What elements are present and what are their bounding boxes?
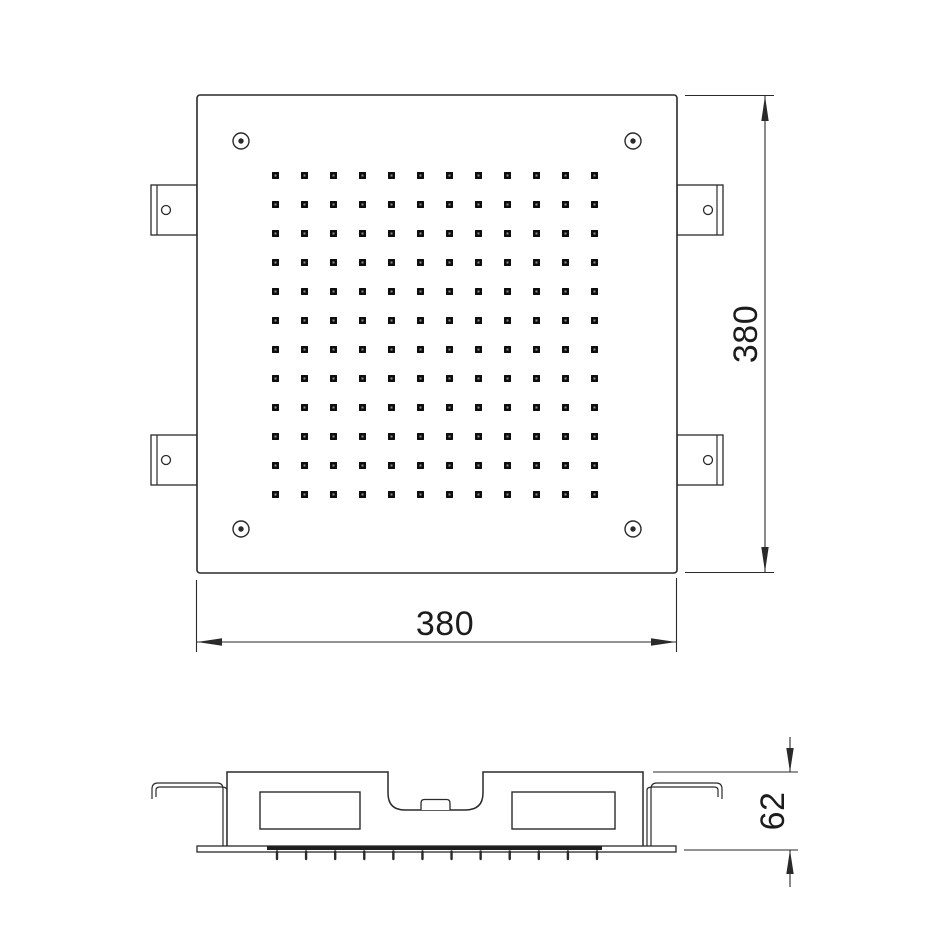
nozzle-opening — [391, 320, 393, 322]
nozzle-opening — [362, 349, 364, 351]
nozzle-opening — [507, 262, 509, 264]
nozzle-opening — [507, 349, 509, 351]
nozzle-opening — [536, 407, 538, 409]
nozzle-opening — [275, 204, 277, 206]
side-view — [152, 772, 722, 859]
clip-inner-line — [647, 787, 718, 847]
nozzle-opening — [565, 262, 567, 264]
nozzle-opening — [391, 291, 393, 293]
nozzle-opening — [362, 262, 364, 264]
nozzle-opening — [275, 436, 277, 438]
nozzle-opening — [536, 494, 538, 496]
center-inlet-tab — [421, 800, 450, 811]
nozzle-opening — [478, 436, 480, 438]
dimension-label-depth: 62 — [754, 792, 792, 831]
nozzle-opening — [507, 320, 509, 322]
nozzle-opening — [536, 204, 538, 206]
nozzle-opening — [594, 204, 596, 206]
nozzle-opening — [362, 233, 364, 235]
nozzle-opening — [594, 320, 596, 322]
shower-plate-outline — [197, 95, 677, 573]
arrowhead-up — [761, 96, 768, 121]
nozzle-opening — [449, 204, 451, 206]
nozzle-opening — [304, 262, 306, 264]
nozzle-opening — [391, 407, 393, 409]
nozzle-opening — [594, 291, 596, 293]
screw-hole-inner — [238, 526, 243, 531]
nozzle-opening — [304, 320, 306, 322]
nozzle-opening — [362, 465, 364, 467]
nozzle-opening — [304, 494, 306, 496]
spring-clip-left — [152, 783, 227, 847]
nozzle-opening — [507, 494, 509, 496]
nozzle-opening — [275, 262, 277, 264]
nozzle-opening — [449, 378, 451, 380]
screw-hole-inner — [238, 138, 243, 143]
nozzle-opening — [362, 407, 364, 409]
bracket-body — [151, 435, 197, 485]
arrowhead-right — [651, 638, 676, 645]
nozzle-opening — [275, 465, 277, 467]
nozzle-opening — [420, 349, 422, 351]
nozzle-opening — [275, 349, 277, 351]
nozzle-opening — [507, 233, 509, 235]
nozzle-opening — [333, 233, 335, 235]
nozzle-opening — [362, 494, 364, 496]
nozzle-opening — [594, 175, 596, 177]
nozzle-opening — [449, 175, 451, 177]
nozzle-opening — [536, 436, 538, 438]
dimension-plate-width: 380 — [197, 578, 677, 652]
nozzle-opening — [420, 378, 422, 380]
nozzle-opening — [304, 407, 306, 409]
nozzle-opening — [449, 407, 451, 409]
nozzle-opening — [449, 494, 451, 496]
dimension-plate-height: 380 — [685, 96, 774, 573]
nozzle-opening — [478, 175, 480, 177]
dimension-label-width: 380 — [416, 605, 474, 643]
nozzle-opening — [565, 378, 567, 380]
screw-hole-inner — [630, 138, 635, 143]
nozzle-opening — [391, 175, 393, 177]
nozzle-opening — [478, 349, 480, 351]
nozzle-opening — [536, 175, 538, 177]
nozzle-opening — [333, 262, 335, 264]
nozzle-opening — [304, 233, 306, 235]
nozzle-opening — [594, 262, 596, 264]
nozzle-opening — [275, 494, 277, 496]
nozzle-opening — [391, 465, 393, 467]
nozzle-opening — [507, 175, 509, 177]
nozzle-opening — [304, 436, 306, 438]
clip-inner-line — [156, 787, 227, 847]
nozzle-opening — [536, 378, 538, 380]
nozzle-opening — [449, 291, 451, 293]
nozzle-opening — [362, 204, 364, 206]
nozzle-opening — [507, 378, 509, 380]
arrowhead-up — [786, 850, 793, 874]
nozzle-opening — [594, 349, 596, 351]
nozzle-opening — [420, 175, 422, 177]
nozzle-opening — [391, 204, 393, 206]
nozzle-opening — [275, 407, 277, 409]
nozzle-opening — [275, 320, 277, 322]
nozzle-opening — [333, 291, 335, 293]
nozzle-opening — [275, 175, 277, 177]
nozzle-opening — [594, 407, 596, 409]
nozzle-opening — [391, 378, 393, 380]
nozzle-opening — [304, 291, 306, 293]
nozzle-opening — [594, 436, 596, 438]
arrowhead-left — [197, 638, 222, 645]
nozzle-opening — [333, 204, 335, 206]
nozzle-opening — [478, 407, 480, 409]
nozzle-opening — [304, 175, 306, 177]
nozzle-opening — [333, 378, 335, 380]
technical-drawing-page: 380 380 — [0, 0, 950, 950]
nozzle-opening — [507, 436, 509, 438]
nozzle-opening — [362, 378, 364, 380]
arrowhead-down — [786, 748, 793, 772]
dimension-body-height: 62 — [653, 737, 798, 887]
mounting-bracket-left — [151, 435, 197, 485]
nozzle-opening — [565, 494, 567, 496]
nozzle-opening — [594, 465, 596, 467]
nozzle-opening — [565, 349, 567, 351]
clip-outer-line — [651, 783, 722, 847]
mounting-bracket-right — [677, 435, 723, 485]
mounting-bracket-right — [677, 185, 723, 235]
nozzle-opening — [507, 204, 509, 206]
arrowhead-down — [761, 547, 768, 572]
nozzle-opening — [420, 291, 422, 293]
nozzle-opening — [478, 233, 480, 235]
nozzle-opening — [304, 465, 306, 467]
bracket-body — [151, 185, 197, 235]
nozzle-opening — [565, 407, 567, 409]
nozzle-opening — [565, 465, 567, 467]
nozzle-opening — [478, 465, 480, 467]
nozzle-opening — [391, 494, 393, 496]
nozzle-opening — [507, 407, 509, 409]
bracket-body — [677, 185, 723, 235]
nozzle-opening — [565, 233, 567, 235]
top-view — [151, 95, 723, 573]
mounting-bracket-left — [151, 185, 197, 235]
nozzle-opening — [536, 465, 538, 467]
nozzle-opening — [420, 436, 422, 438]
nozzle-opening — [391, 436, 393, 438]
nozzle-opening — [275, 291, 277, 293]
nozzle-opening — [420, 204, 422, 206]
nozzle-opening — [449, 320, 451, 322]
nozzle-opening — [565, 175, 567, 177]
nozzle-opening — [565, 291, 567, 293]
nozzle-opening — [275, 233, 277, 235]
bracket-body — [677, 435, 723, 485]
nozzle-opening — [420, 320, 422, 322]
screw-hole-inner — [630, 526, 635, 531]
nozzle-opening — [507, 291, 509, 293]
nozzle-opening — [333, 320, 335, 322]
nozzle-opening — [333, 175, 335, 177]
nozzle-opening — [333, 349, 335, 351]
nozzle-opening — [449, 465, 451, 467]
nozzle-opening — [449, 233, 451, 235]
spring-clip-right — [647, 783, 722, 847]
nozzle-opening — [565, 436, 567, 438]
nozzle-opening — [420, 407, 422, 409]
nozzle-opening — [507, 465, 509, 467]
nozzle-opening — [304, 378, 306, 380]
nozzle-opening — [420, 494, 422, 496]
nozzle-opening — [594, 494, 596, 496]
nozzle-opening — [420, 262, 422, 264]
nozzle-opening — [449, 262, 451, 264]
nozzle-opening — [536, 291, 538, 293]
nozzle-opening — [391, 349, 393, 351]
nozzle-opening — [333, 436, 335, 438]
nozzle-opening — [304, 349, 306, 351]
nozzle-opening — [478, 320, 480, 322]
nozzle-opening — [333, 407, 335, 409]
shower-head-technical-drawing: 380 380 — [0, 0, 950, 950]
nozzle-opening — [304, 204, 306, 206]
nozzle-opening — [391, 233, 393, 235]
nozzle-opening — [565, 204, 567, 206]
nozzle-opening — [391, 262, 393, 264]
nozzle-opening — [362, 320, 364, 322]
nozzle-opening — [362, 291, 364, 293]
nozzle-opening — [333, 494, 335, 496]
nozzle-opening — [536, 262, 538, 264]
nozzle-opening — [565, 320, 567, 322]
nozzle-opening — [594, 378, 596, 380]
nozzle-opening — [275, 378, 277, 380]
nozzle-opening — [362, 175, 364, 177]
nozzle-opening — [362, 436, 364, 438]
clip-outer-line — [152, 783, 223, 847]
dimension-label-height: 380 — [727, 305, 765, 363]
nozzle-opening — [536, 233, 538, 235]
nozzle-opening — [333, 465, 335, 467]
nozzle-opening — [449, 349, 451, 351]
nozzle-opening — [420, 465, 422, 467]
nozzle-opening — [536, 349, 538, 351]
nozzle-opening — [536, 320, 538, 322]
nozzle-opening — [594, 233, 596, 235]
nozzle-opening — [478, 291, 480, 293]
nozzle-opening — [478, 378, 480, 380]
nozzle-opening — [449, 436, 451, 438]
nozzle-opening — [478, 204, 480, 206]
nozzle-strip — [267, 847, 602, 851]
nozzle-opening — [478, 262, 480, 264]
nozzle-opening — [478, 494, 480, 496]
nozzle-opening — [420, 233, 422, 235]
